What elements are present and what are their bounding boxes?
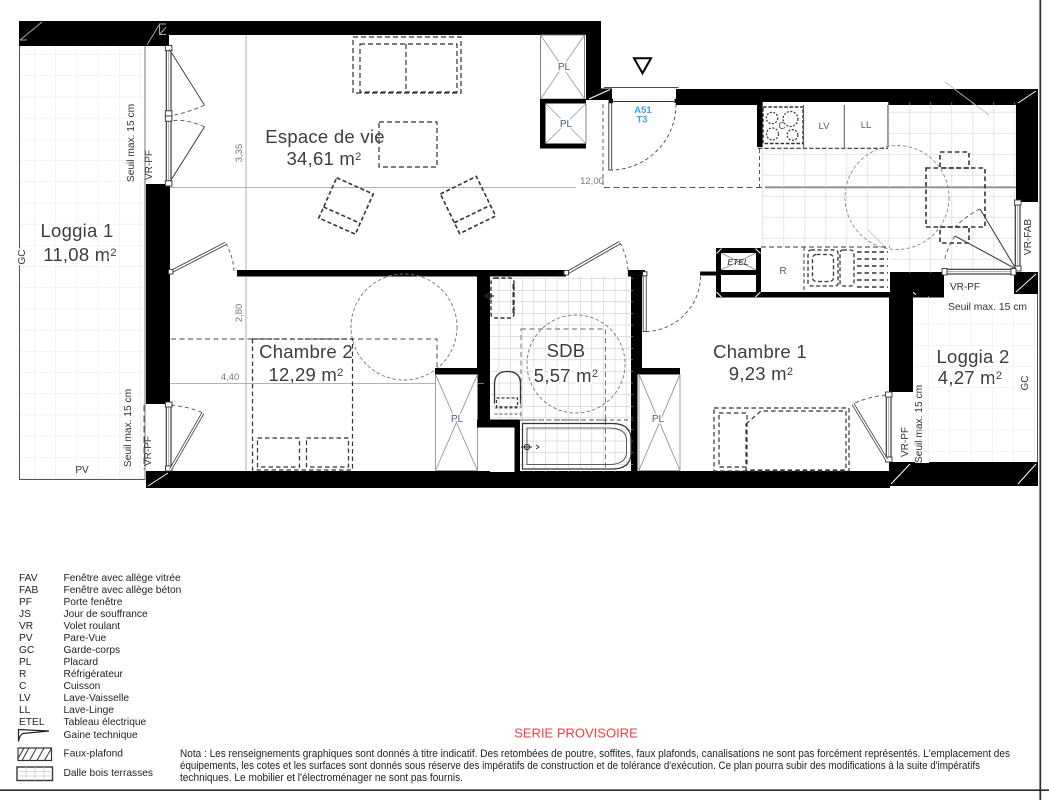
svg-text:JS: JS [19,609,31,620]
svg-text:ETEL: ETEL [19,717,45,728]
svg-text:Jour de souffrance: Jour de souffrance [64,609,149,620]
svg-text:12,29 m2: 12,29 m2 [269,364,344,385]
svg-text:4,40: 4,40 [221,372,240,383]
svg-text:équipements, les cotes et les: équipements, les cotes et les surfaces s… [180,760,980,772]
svg-text:Gaine technique: Gaine technique [64,730,139,741]
svg-text:R: R [779,266,786,277]
svg-text:4,27 m2: 4,27 m2 [938,367,1002,388]
svg-text:VR-FAB: VR-FAB [1023,219,1034,255]
svg-text:C: C [778,121,785,132]
svg-text:PL: PL [558,62,571,73]
svg-text:Porte fenêtre: Porte fenêtre [64,597,123,608]
svg-text:FAB: FAB [19,585,38,596]
svg-text:Chambre 1: Chambre 1 [713,341,807,362]
svg-text:5,57 m2: 5,57 m2 [534,365,598,386]
svg-text:SERIE PROVISOIRE: SERIE PROVISOIRE [514,726,638,741]
svg-text:VR-PF: VR-PF [950,282,980,293]
svg-text:VR-PF: VR-PF [143,436,154,466]
svg-text:GC: GC [1020,376,1031,391]
svg-text:GC: GC [19,645,34,656]
svg-text:VR-PF: VR-PF [900,427,911,457]
svg-text:PV: PV [19,633,33,644]
svg-text:LV: LV [819,121,831,132]
svg-text:PL: PL [560,119,573,130]
svg-text:Faux-plafond: Faux-plafond [64,749,124,760]
svg-text:Garde-corps: Garde-corps [64,645,121,656]
svg-text:Cuisson: Cuisson [64,681,101,692]
svg-text:VR-PF: VR-PF [144,150,155,180]
svg-text:34,61 m2: 34,61 m2 [287,148,362,169]
svg-text:Fenêtre avec allège béton: Fenêtre avec allège béton [64,585,182,596]
svg-text:PV: PV [75,465,89,476]
svg-text:LL: LL [861,120,872,131]
svg-text:PL: PL [652,414,665,425]
svg-text:LL: LL [19,705,31,716]
svg-text:techniques. Le mobilier et l'é: techniques. Le mobilier et l'électroména… [180,772,463,784]
svg-text:Seuil max. 15 cm: Seuil max. 15 cm [126,104,137,182]
svg-text:Seuil max. 15 cm: Seuil max. 15 cm [123,389,134,467]
svg-text:Seuil max. 15 cm: Seuil max. 15 cm [948,302,1027,313]
svg-text:FAV: FAV [19,573,38,584]
svg-text:Volet roulant: Volet roulant [64,621,121,632]
svg-text:Tableau électrique: Tableau électrique [64,717,147,728]
svg-text:11,08 m2: 11,08 m2 [43,244,117,265]
svg-text:PF: PF [19,597,32,608]
svg-text:Fenêtre avec allège vitrée: Fenêtre avec allège vitrée [64,573,182,584]
svg-text:GC: GC [17,250,28,265]
svg-text:R: R [19,669,26,680]
svg-text:Dalle bois terrasses: Dalle bois terrasses [64,768,153,779]
svg-text:ETEL: ETEL [727,257,749,267]
svg-text:T3: T3 [636,115,647,126]
svg-text:2,80: 2,80 [234,304,245,323]
svg-text:SDB: SDB [547,340,586,361]
svg-text:Placard: Placard [64,657,99,668]
svg-text:3,35: 3,35 [234,144,245,163]
svg-text:Réfrigérateur: Réfrigérateur [64,669,124,680]
svg-text:Lave-Linge: Lave-Linge [64,705,115,716]
svg-text:PL: PL [451,414,464,425]
svg-text:Lave-Vaisselle: Lave-Vaisselle [64,693,130,704]
svg-text:Nota : Les renseignements grap: Nota : Les renseignements graphiques son… [180,748,1010,760]
svg-text:C: C [19,681,26,692]
svg-text:LV: LV [19,693,31,704]
svg-text:Pare-Vue: Pare-Vue [64,633,107,644]
svg-text:Chambre 2: Chambre 2 [259,341,353,362]
svg-text:9,23 m2: 9,23 m2 [729,363,793,384]
svg-text:12,00: 12,00 [580,176,604,187]
svg-text:Loggia 1: Loggia 1 [41,220,114,241]
svg-text:PL: PL [19,657,32,668]
svg-text:VR: VR [19,621,33,632]
svg-text:Espace de vie: Espace de vie [265,126,384,147]
svg-text:Loggia 2: Loggia 2 [937,346,1010,367]
